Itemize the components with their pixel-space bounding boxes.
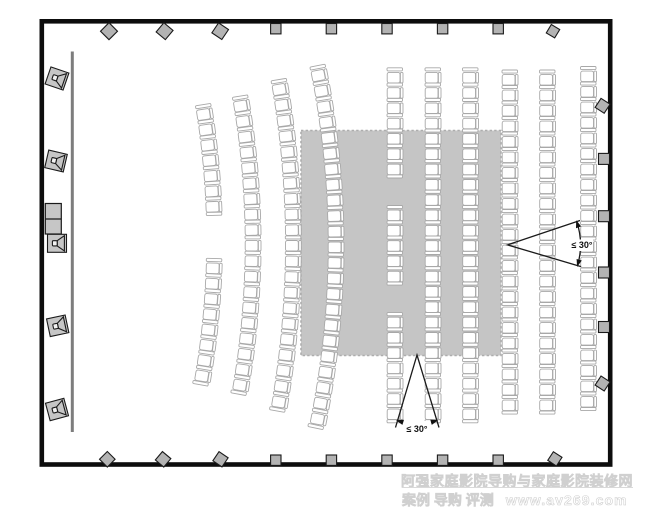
svg-text:≤ 30°: ≤ 30° [571, 240, 592, 250]
svg-text:≤ 30°: ≤ 30° [406, 424, 427, 434]
